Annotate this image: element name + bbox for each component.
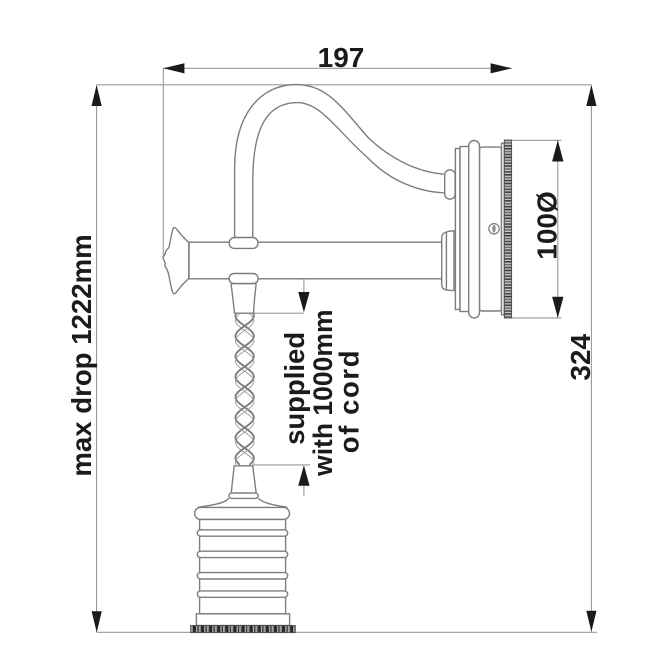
svg-text:of cord: of cord: [334, 349, 365, 453]
svg-text:100Ø: 100Ø: [532, 191, 563, 260]
svg-text:max drop 1222mm: max drop 1222mm: [66, 234, 97, 476]
svg-text:supplied: supplied: [279, 332, 310, 445]
svg-text:324: 324: [565, 334, 596, 381]
svg-text:197: 197: [318, 42, 365, 73]
